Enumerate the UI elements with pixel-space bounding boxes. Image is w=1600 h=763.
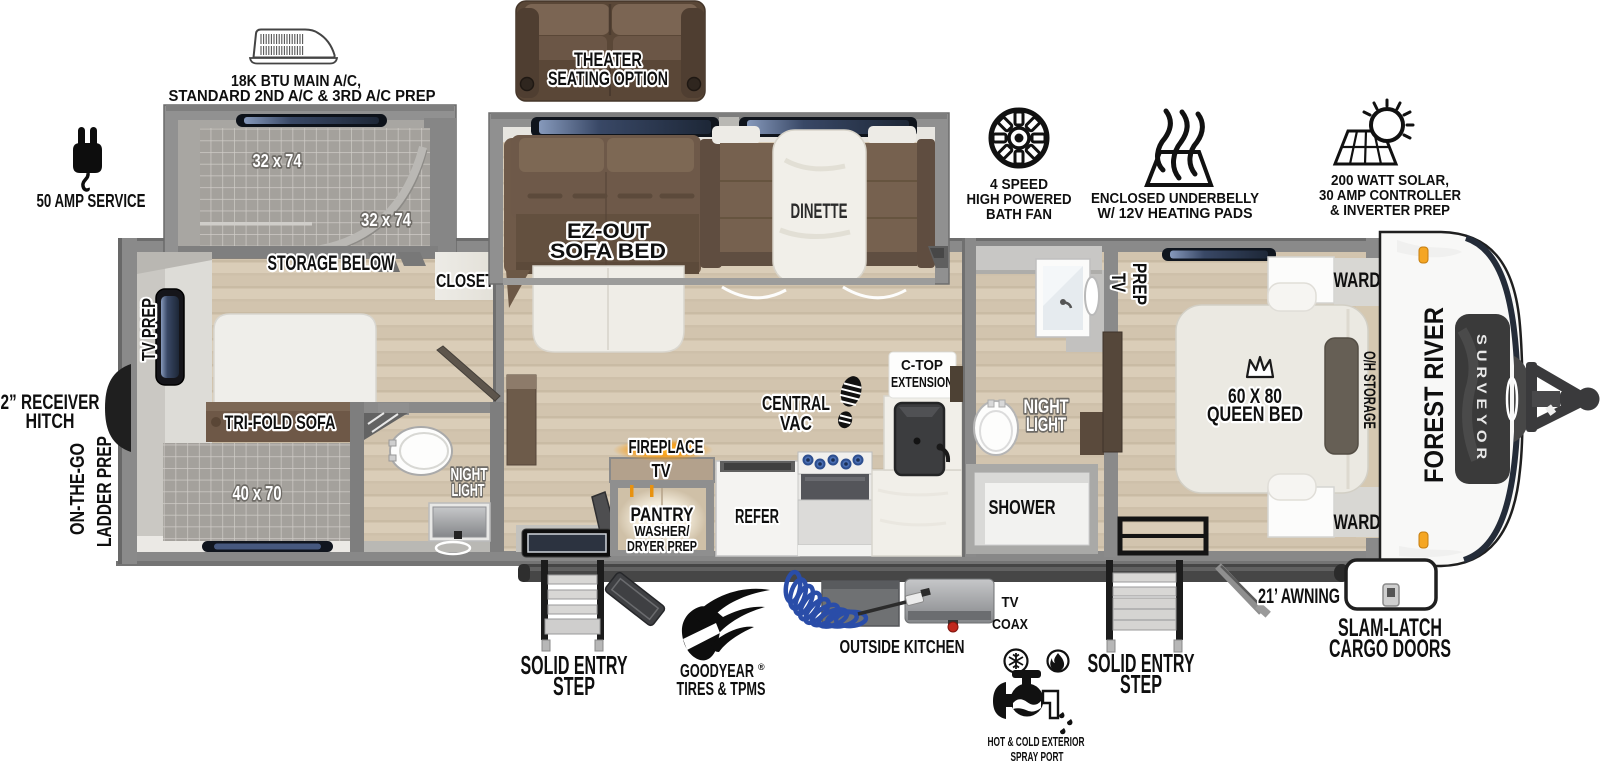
svg-text:21’ AWNING: 21’ AWNING: [1258, 584, 1340, 608]
svg-text:CENTRAL: CENTRAL: [762, 393, 830, 415]
svg-text:TV: TV: [1002, 594, 1019, 611]
svg-text:ENCLOSED UNDERBELLY: ENCLOSED UNDERBELLY: [1091, 191, 1259, 207]
svg-text:TV: TV: [1107, 273, 1128, 292]
svg-text:SHOWER: SHOWER: [989, 497, 1056, 519]
svg-text:EXTENSION: EXTENSION: [891, 374, 953, 391]
svg-text:HITCH: HITCH: [26, 410, 75, 433]
svg-text:TIRES & TPMS: TIRES & TPMS: [677, 679, 766, 699]
svg-text:32 x 74: 32 x 74: [253, 151, 302, 171]
svg-text:QUEEN BED: QUEEN BED: [1207, 403, 1303, 426]
svg-text:W/ 12V HEATING PADS: W/ 12V HEATING PADS: [1098, 206, 1253, 222]
svg-text:BATH FAN: BATH FAN: [986, 207, 1052, 223]
svg-text:50 AMP SERVICE: 50 AMP SERVICE: [37, 191, 146, 211]
svg-text:SEATING OPTION: SEATING OPTION: [548, 69, 668, 90]
svg-text:STORAGE BELOW: STORAGE BELOW: [268, 252, 395, 275]
svg-text:LIGHT: LIGHT: [452, 480, 485, 500]
svg-text:CARGO DOORS: CARGO DOORS: [1329, 635, 1451, 663]
svg-text:®: ®: [758, 662, 765, 672]
svg-text:TV: TV: [652, 461, 671, 481]
svg-text:O/H STORAGE: O/H STORAGE: [1360, 351, 1379, 429]
svg-text:TRI-FOLD SOFA: TRI-FOLD SOFA: [225, 412, 336, 434]
svg-text:SOFA BED: SOFA BED: [550, 240, 666, 263]
svg-text:C-TOP: C-TOP: [901, 357, 943, 374]
svg-text:VAC: VAC: [780, 413, 812, 435]
svg-text:& INVERTER PREP: & INVERTER PREP: [1330, 203, 1450, 219]
svg-text:LADDER PREP: LADDER PREP: [94, 436, 116, 547]
svg-text:30 AMP CONTROLLER: 30 AMP CONTROLLER: [1319, 188, 1461, 204]
svg-text:ON-THE-GO: ON-THE-GO: [67, 443, 89, 535]
svg-text:OUTSIDE KITCHEN: OUTSIDE KITCHEN: [840, 637, 965, 657]
svg-text:GOODYEAR: GOODYEAR: [680, 661, 754, 681]
svg-text:COAX: COAX: [992, 616, 1028, 633]
svg-text:CLOSET: CLOSET: [436, 271, 494, 291]
svg-text:SURVEYOR: SURVEYOR: [1474, 334, 1489, 464]
svg-text:HOT & COLD EXTERIOR: HOT & COLD EXTERIOR: [988, 735, 1085, 749]
svg-text:FIREPLACE: FIREPLACE: [629, 437, 704, 457]
svg-text:DRYER PREP: DRYER PREP: [627, 538, 697, 555]
svg-text:200 WATT SOLAR,: 200 WATT SOLAR,: [1331, 173, 1449, 189]
svg-text:WARD: WARD: [1334, 269, 1381, 292]
svg-text:WARD: WARD: [1334, 511, 1381, 534]
svg-text:DINETTE: DINETTE: [791, 200, 848, 223]
svg-text:SPRAY PORT: SPRAY PORT: [1011, 750, 1064, 763]
svg-text:REFER: REFER: [735, 506, 779, 528]
svg-text:STEP: STEP: [1120, 669, 1162, 699]
svg-text:4 SPEED: 4 SPEED: [990, 177, 1048, 193]
svg-text:HIGH POWERED: HIGH POWERED: [967, 192, 1072, 208]
svg-text:LIGHT: LIGHT: [1026, 415, 1066, 436]
svg-text:PREP: PREP: [1128, 263, 1149, 305]
svg-text:40 x 70: 40 x 70: [233, 483, 282, 505]
svg-text:STEP: STEP: [553, 671, 595, 701]
svg-text:THEATER: THEATER: [574, 50, 642, 71]
svg-text:STANDARD 2ND A/C & 3RD A/C PRE: STANDARD 2ND A/C & 3RD A/C PREP: [169, 88, 436, 105]
svg-text:32 x 74: 32 x 74: [361, 210, 411, 230]
svg-text:FOREST RIVER: FOREST RIVER: [1419, 307, 1449, 483]
svg-text:TV PREP: TV PREP: [139, 298, 159, 361]
